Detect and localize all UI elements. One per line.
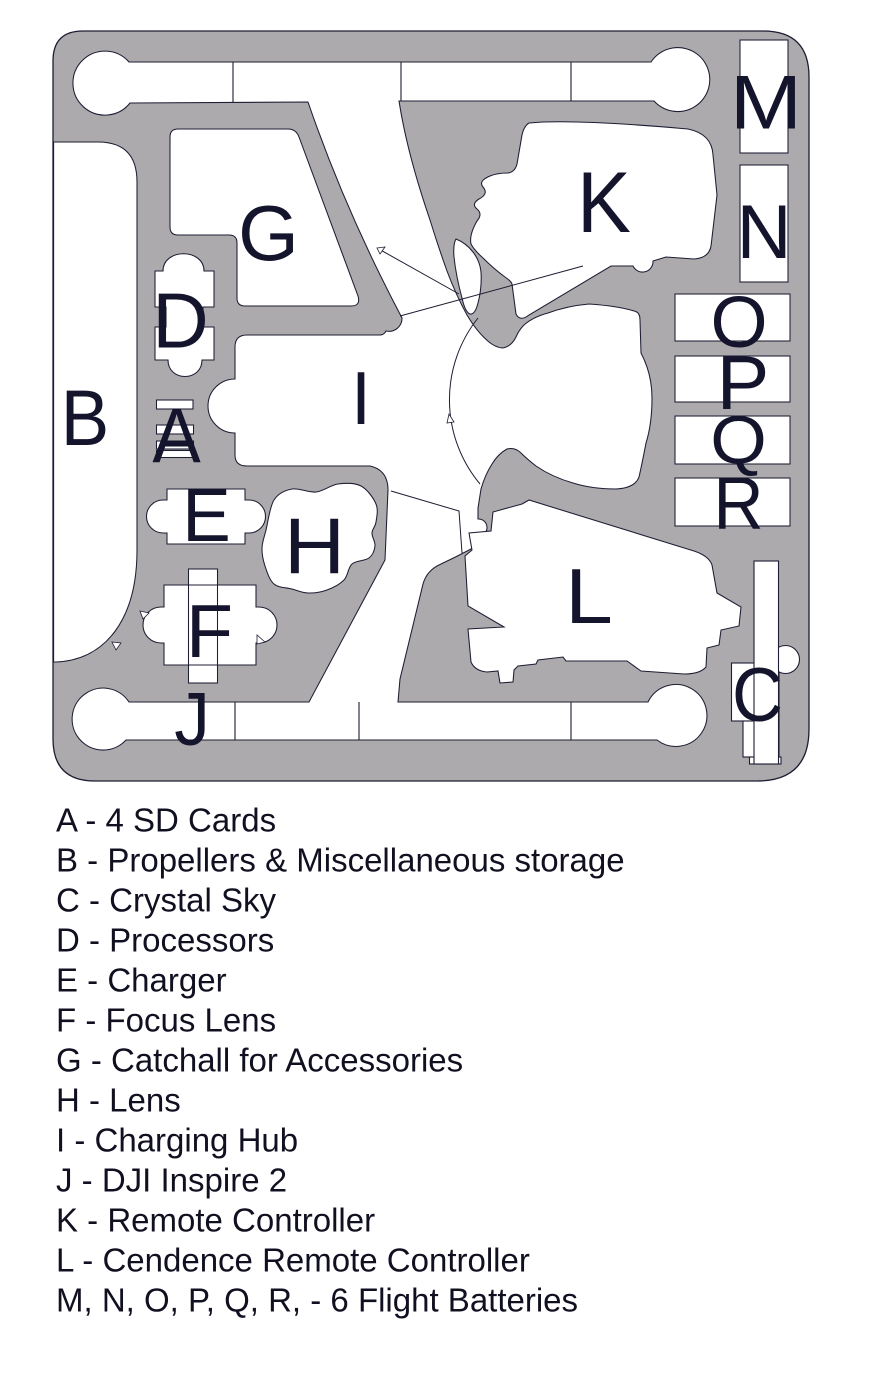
svg-text:R: R [713,463,763,545]
svg-text:M, N, O, P, Q, R, - 6 Flight B: M, N, O, P, Q, R, - 6 Flight Batteries [56,1282,578,1319]
svg-text:F: F [186,590,233,674]
svg-text:J - DJI Inspire 2: J - DJI Inspire 2 [56,1162,287,1199]
svg-text:L - Cendence Remote Controller: L - Cendence Remote Controller [56,1242,530,1279]
svg-text:E: E [182,473,231,557]
svg-text:G: G [238,189,299,277]
svg-text:J: J [174,678,210,761]
svg-text:D - Processors: D - Processors [56,922,274,959]
svg-text:F - Focus Lens: F - Focus Lens [56,1002,276,1039]
svg-text:K - Remote Controller: K - Remote Controller [56,1202,375,1239]
svg-text:D: D [152,277,208,365]
svg-text:E - Charger: E - Charger [56,962,227,999]
svg-text:L: L [565,554,613,641]
svg-text:C: C [732,653,783,738]
svg-text:I: I [351,357,371,440]
svg-text:N: N [737,190,792,275]
svg-text:H: H [284,503,345,591]
svg-text:G - Catchall for Accessories: G - Catchall for Accessories [56,1042,463,1079]
svg-text:B - Propellers & Miscellaneous: B - Propellers & Miscellaneous storage [56,842,625,879]
svg-text:K: K [577,154,631,251]
svg-text:I - Charging Hub: I - Charging Hub [56,1122,298,1159]
svg-text:A: A [152,392,201,479]
svg-text:B: B [61,374,109,462]
svg-text:M: M [730,60,802,145]
svg-text:C - Crystal Sky: C - Crystal Sky [56,882,277,919]
svg-text:A - 4 SD Cards: A - 4 SD Cards [56,802,276,839]
svg-text:H - Lens: H - Lens [56,1082,181,1119]
